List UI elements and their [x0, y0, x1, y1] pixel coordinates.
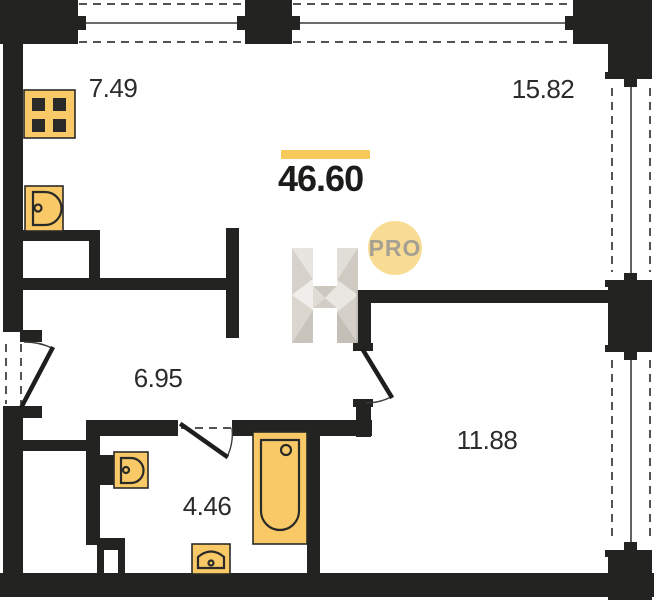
door-swing-icon-bedroom [363, 350, 391, 403]
window-icon-top-left [78, 4, 245, 42]
living-room-area-label: 15.82 [508, 76, 578, 103]
stove [24, 90, 75, 138]
pro-badge: PRO [368, 221, 422, 275]
toilet [192, 544, 230, 574]
kitchen-area-label: 7.49 [80, 75, 146, 102]
h-logo-watermark [292, 248, 358, 343]
door-swing-icon-entrance [6, 342, 52, 406]
window-icon-right-upper [612, 87, 650, 273]
total-area-value: 46.60 [278, 160, 363, 198]
bedroom-area-label: 11.88 [452, 427, 522, 454]
bathroom-area-label: 4.46 [174, 493, 240, 520]
bathtub [253, 432, 307, 544]
floor-plan: 7.49 15.82 6.95 4.46 11.88 46.60 PRO [0, 0, 654, 600]
bath-sink [100, 452, 148, 488]
kitchen-sink [25, 186, 63, 231]
window-icon-right-lower [612, 360, 650, 542]
hallway-area-label: 6.95 [125, 365, 191, 392]
door-swing-icon-bathroom [181, 425, 232, 457]
pro-badge-label: PRO [369, 235, 422, 262]
window-icon-top-right [292, 4, 573, 42]
